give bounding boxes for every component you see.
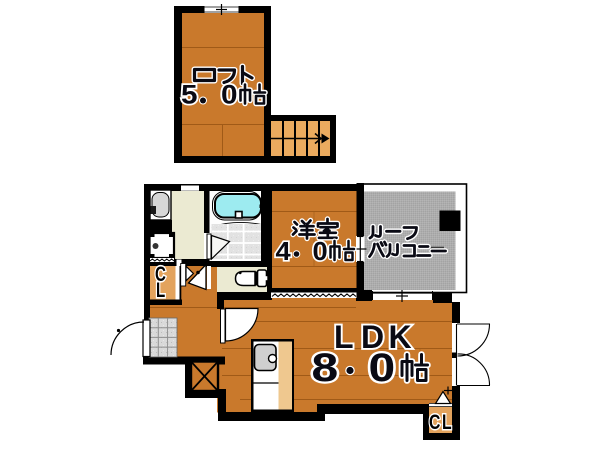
svg-text:L: L [156,277,165,301]
svg-text:8: 8 [312,346,339,390]
svg-text:4: 4 [276,237,291,266]
svg-text:0: 0 [313,237,328,266]
svg-text:5: 5 [181,80,198,110]
svg-text:0: 0 [221,80,238,110]
svg-text:C: C [429,410,440,434]
svg-text:L: L [442,410,452,434]
svg-text:0: 0 [369,346,396,390]
